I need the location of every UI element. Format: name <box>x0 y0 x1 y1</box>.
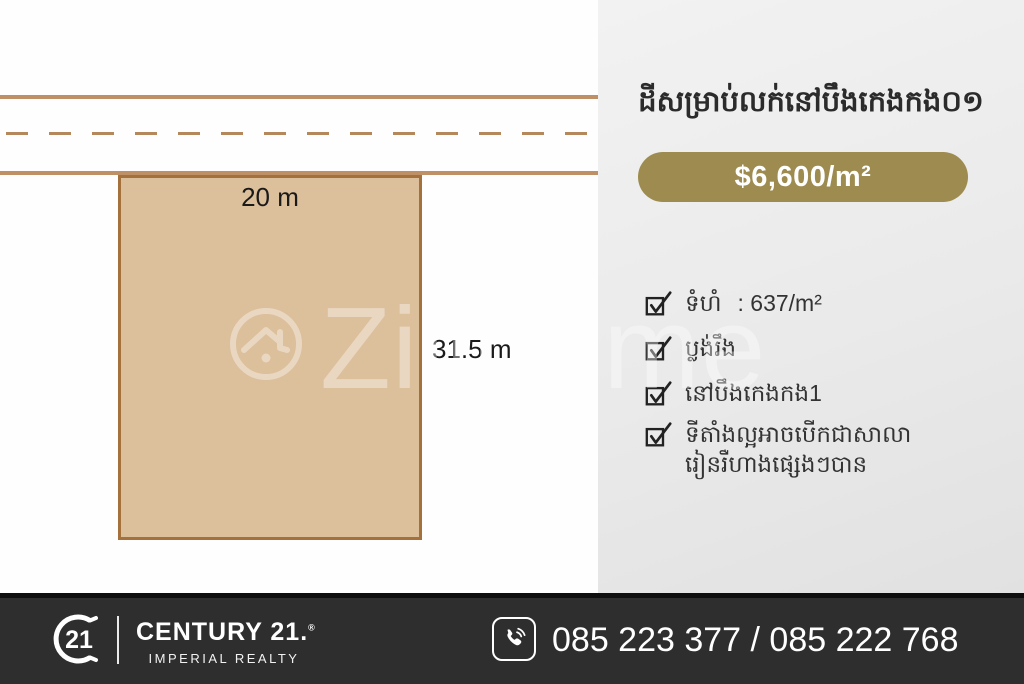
logo-number: 21 <box>65 626 93 654</box>
listing-title: ដីសម្រាប់លក់នៅបឹងកេងកង០១ <box>598 84 1024 126</box>
price-label: $6,600/m² <box>735 161 872 194</box>
land-plot-shape <box>118 175 422 540</box>
feature-label: ប្លង់រឹង <box>685 333 736 363</box>
checkbox-checked-icon <box>645 290 672 317</box>
road-center-dashed-line <box>6 132 592 135</box>
phone-icon <box>500 625 528 653</box>
feature-label: ទំហំ <box>685 290 722 316</box>
registered-mark: ® <box>308 623 316 633</box>
feature-value: : 637/m² <box>738 290 822 316</box>
feature-label: នៅបឹងកេងកង1 <box>685 378 822 408</box>
checkbox-checked-icon <box>645 380 672 407</box>
plot-depth-label: 31.5 m <box>432 334 512 365</box>
feature-item-title-type: ប្លង់រឹង <box>645 333 736 363</box>
feature-item-location: នៅបឹងកេងកង1 <box>645 378 822 408</box>
checkbox-checked-icon <box>645 335 672 362</box>
century21-logo-icon: 21 <box>52 612 104 666</box>
feature-item-potential: ទីតាំងល្អអាចបើកជាសាលា រៀនរឺហាងផ្សេងៗបាន <box>645 419 911 479</box>
brand-block: CENTURY 21.® IMPERIAL REALTY <box>136 618 312 666</box>
phone-numbers: 085 223 377 / 085 222 768 <box>552 620 959 660</box>
listing-flyer: 20 m 31.5 m ដីសម្រាប់លក់នៅបឹងកេងកង០១ $6,… <box>0 0 1024 684</box>
brand-subtitle: IMPERIAL REALTY <box>136 651 312 666</box>
road-top-line <box>0 95 598 99</box>
feature-label: ទីតាំងល្អអាចបើកជាសាលា រៀនរឺហាងផ្សេងៗបាន <box>685 419 911 479</box>
listing-details-panel: ដីសម្រាប់លក់នៅបឹងកេងកង០១ $6,600/m² ទំហំ:… <box>598 0 1024 593</box>
feature-item-size: ទំហំ: 637/m² <box>645 288 822 318</box>
checkbox-checked-icon <box>645 421 672 448</box>
footer-bar: 21 CENTURY 21.® IMPERIAL REALTY 085 223 … <box>0 593 1024 684</box>
plot-width-label: 20 m <box>118 182 422 213</box>
footer-divider <box>117 616 119 664</box>
phone-badge <box>492 617 536 661</box>
price-badge: $6,600/m² <box>638 152 968 202</box>
brand-name: CENTURY 21. <box>136 618 308 646</box>
plot-diagram-panel: 20 m 31.5 m <box>0 0 598 593</box>
